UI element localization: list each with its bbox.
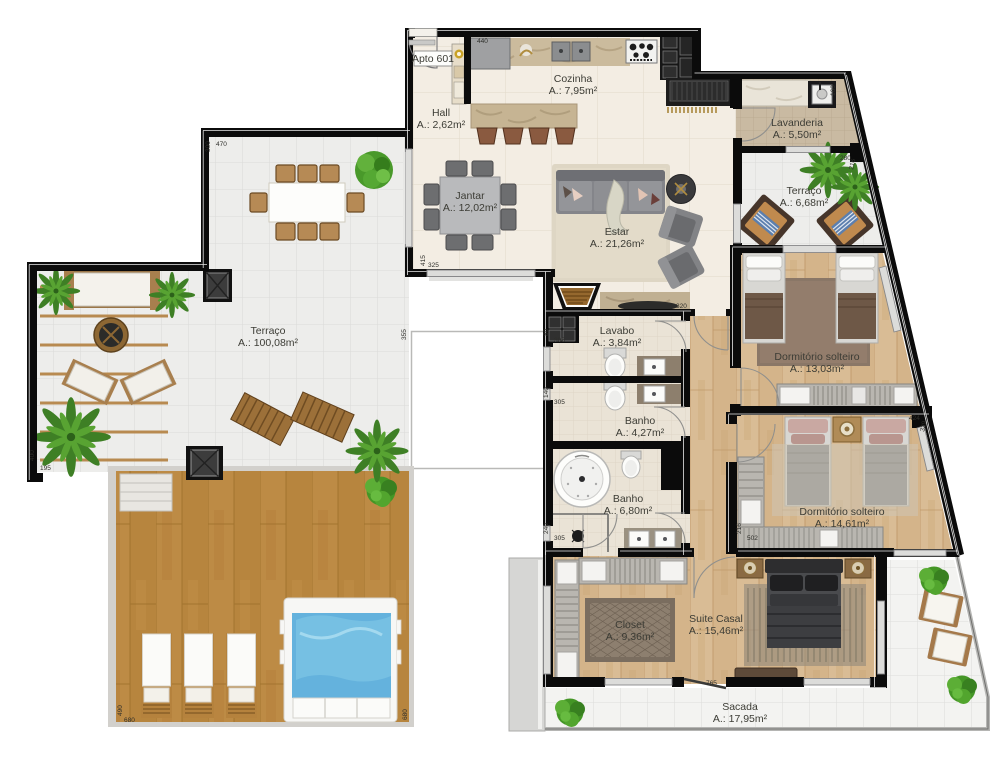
- svg-text:Lavanderia: Lavanderia: [771, 117, 823, 129]
- svg-text:440: 440: [477, 38, 488, 45]
- svg-text:A.: 5,50m²: A.: 5,50m²: [773, 129, 822, 141]
- svg-text:355: 355: [401, 329, 408, 340]
- svg-text:A.: 100,08m²: A.: 100,08m²: [238, 337, 299, 349]
- svg-text:A.: 3,84m²: A.: 3,84m²: [593, 337, 642, 349]
- svg-text:Cozinha: Cozinha: [554, 73, 593, 85]
- svg-text:490: 490: [117, 705, 124, 716]
- svg-text:300: 300: [205, 141, 212, 152]
- svg-text:320: 320: [676, 303, 687, 310]
- svg-text:Jantar: Jantar: [455, 190, 485, 202]
- svg-text:A.: 21,26m²: A.: 21,26m²: [590, 238, 645, 250]
- svg-text:A.: 6,68m²: A.: 6,68m²: [780, 197, 829, 209]
- svg-text:Apto 601: Apto 601: [412, 53, 454, 65]
- svg-text:Banho: Banho: [625, 415, 656, 427]
- svg-text:Closet: Closet: [615, 619, 645, 631]
- svg-text:502: 502: [747, 535, 758, 542]
- svg-text:195: 195: [40, 465, 51, 472]
- svg-text:305: 305: [554, 337, 565, 344]
- svg-text:A.: 6,80m²: A.: 6,80m²: [604, 505, 653, 517]
- svg-text:415: 415: [420, 255, 427, 266]
- svg-text:160: 160: [830, 85, 837, 96]
- svg-text:305: 305: [554, 535, 565, 542]
- svg-text:Dormitório solteiro: Dormitório solteiro: [799, 506, 884, 518]
- svg-text:424: 424: [909, 415, 920, 422]
- svg-text:680: 680: [124, 717, 135, 724]
- svg-text:A.: 13,03m²: A.: 13,03m²: [790, 363, 845, 375]
- svg-text:A.: 15,46m²: A.: 15,46m²: [689, 625, 744, 637]
- svg-text:A.: 2,62m²: A.: 2,62m²: [417, 119, 466, 131]
- svg-text:Hall: Hall: [432, 107, 450, 119]
- svg-text:Sacada: Sacada: [722, 701, 758, 713]
- svg-text:325: 325: [428, 262, 439, 269]
- svg-text:Estar: Estar: [605, 226, 630, 238]
- svg-text:80: 80: [543, 328, 550, 336]
- svg-text:A.: 12,02m²: A.: 12,02m²: [443, 202, 498, 214]
- svg-text:Terraço: Terraço: [250, 325, 285, 337]
- svg-text:A.: 14,61m²: A.: 14,61m²: [815, 518, 870, 530]
- svg-text:240: 240: [543, 523, 550, 534]
- svg-text:Banho: Banho: [613, 493, 644, 505]
- svg-text:A.: 7,95m²: A.: 7,95m²: [549, 85, 598, 97]
- svg-text:765: 765: [706, 680, 717, 687]
- svg-text:140: 140: [543, 387, 550, 398]
- svg-text:216: 216: [736, 523, 743, 534]
- svg-text:680: 680: [402, 709, 409, 720]
- svg-text:Terraço: Terraço: [786, 185, 821, 197]
- svg-text:A.: 9,36m²: A.: 9,36m²: [606, 631, 655, 643]
- svg-text:400: 400: [29, 450, 36, 461]
- svg-text:Lavabo: Lavabo: [600, 325, 635, 337]
- svg-text:A.: 17,95m²: A.: 17,95m²: [713, 713, 768, 725]
- svg-text:A.: 4,27m²: A.: 4,27m²: [616, 427, 665, 439]
- svg-text:305: 305: [554, 399, 565, 406]
- svg-text:470: 470: [216, 141, 227, 148]
- svg-text:Dormitório solteiro: Dormitório solteiro: [774, 351, 859, 363]
- svg-text:Suite Casal: Suite Casal: [689, 613, 743, 625]
